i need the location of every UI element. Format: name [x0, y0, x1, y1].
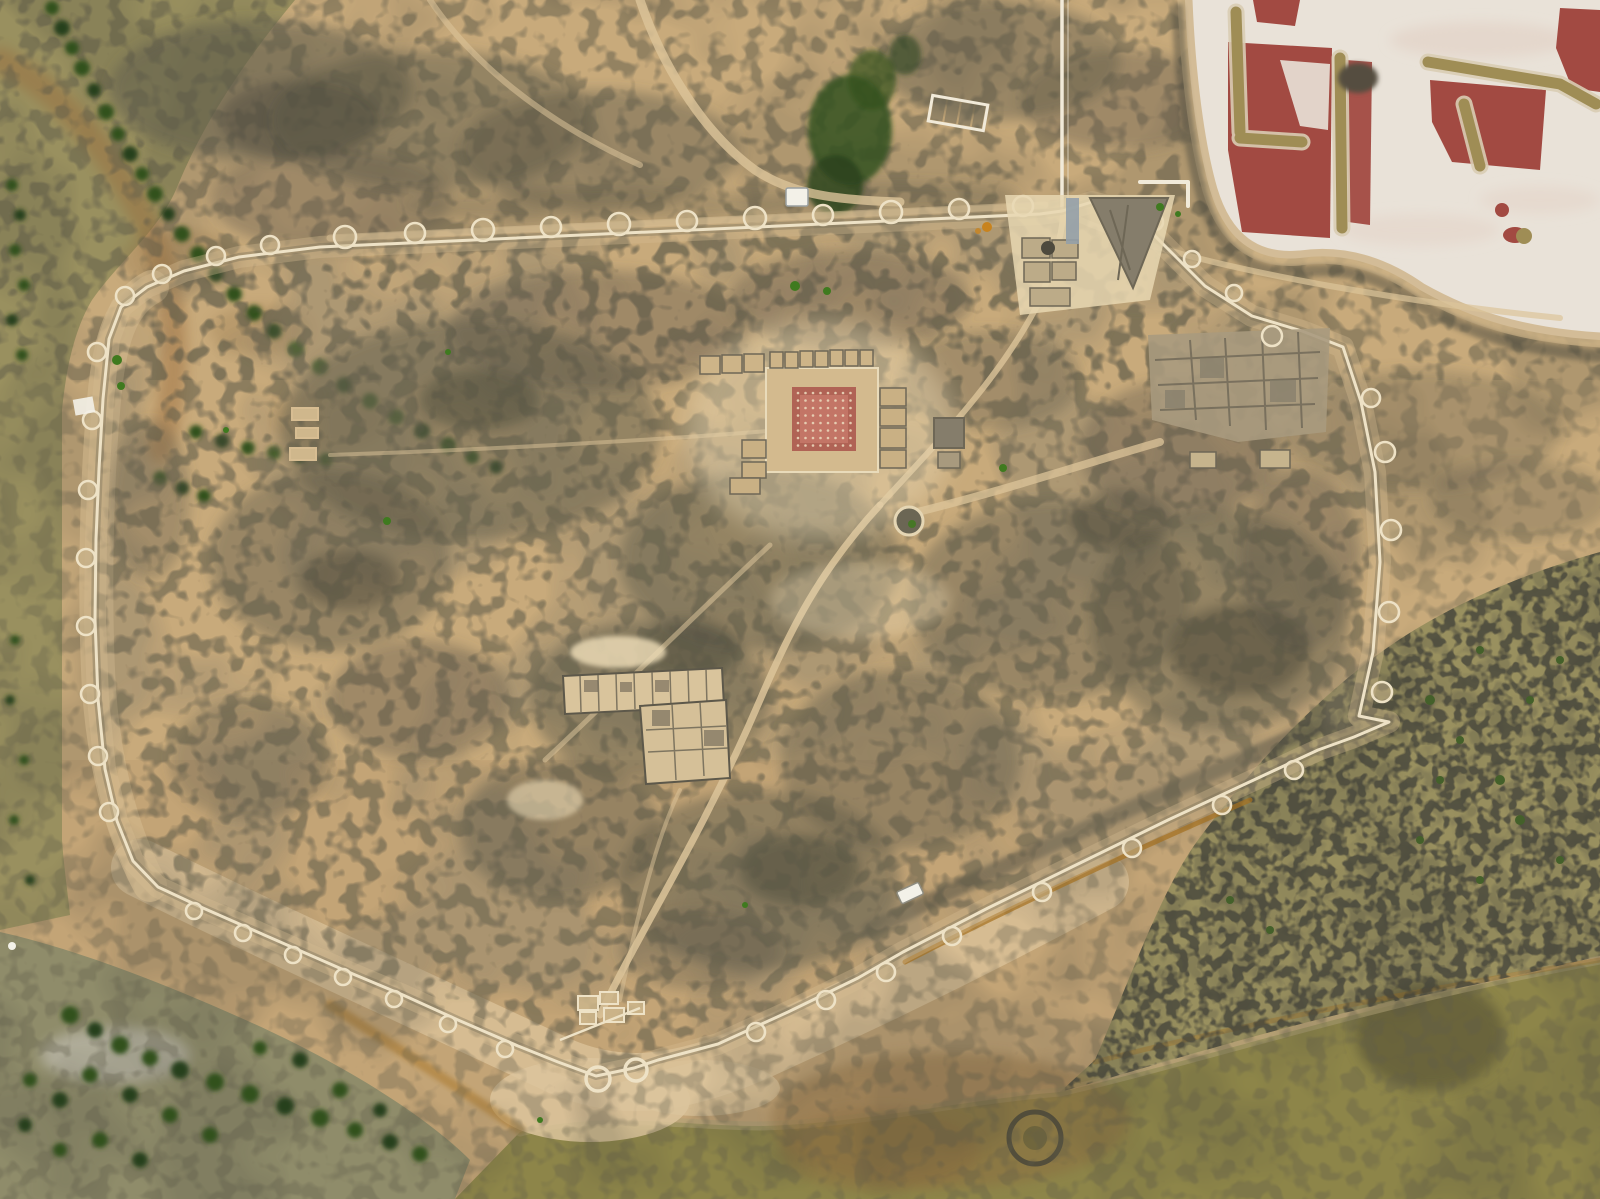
- white-tarp: [73, 396, 95, 415]
- levee-debris-blob: [1338, 63, 1378, 93]
- spoil-heap: [570, 636, 666, 668]
- aerial-orthophoto: [0, 0, 1600, 1199]
- screenshot-root: [0, 0, 1600, 1199]
- east-rooms: [880, 388, 906, 468]
- white-dot: [8, 942, 16, 950]
- white-hut: [786, 188, 808, 206]
- round-structure: [895, 507, 923, 535]
- round-tower: [1262, 326, 1282, 346]
- orange-marker: [982, 222, 992, 232]
- gate-walkway: [1066, 198, 1079, 244]
- detached-building: [934, 418, 964, 448]
- excavation-pit: [1041, 241, 1055, 255]
